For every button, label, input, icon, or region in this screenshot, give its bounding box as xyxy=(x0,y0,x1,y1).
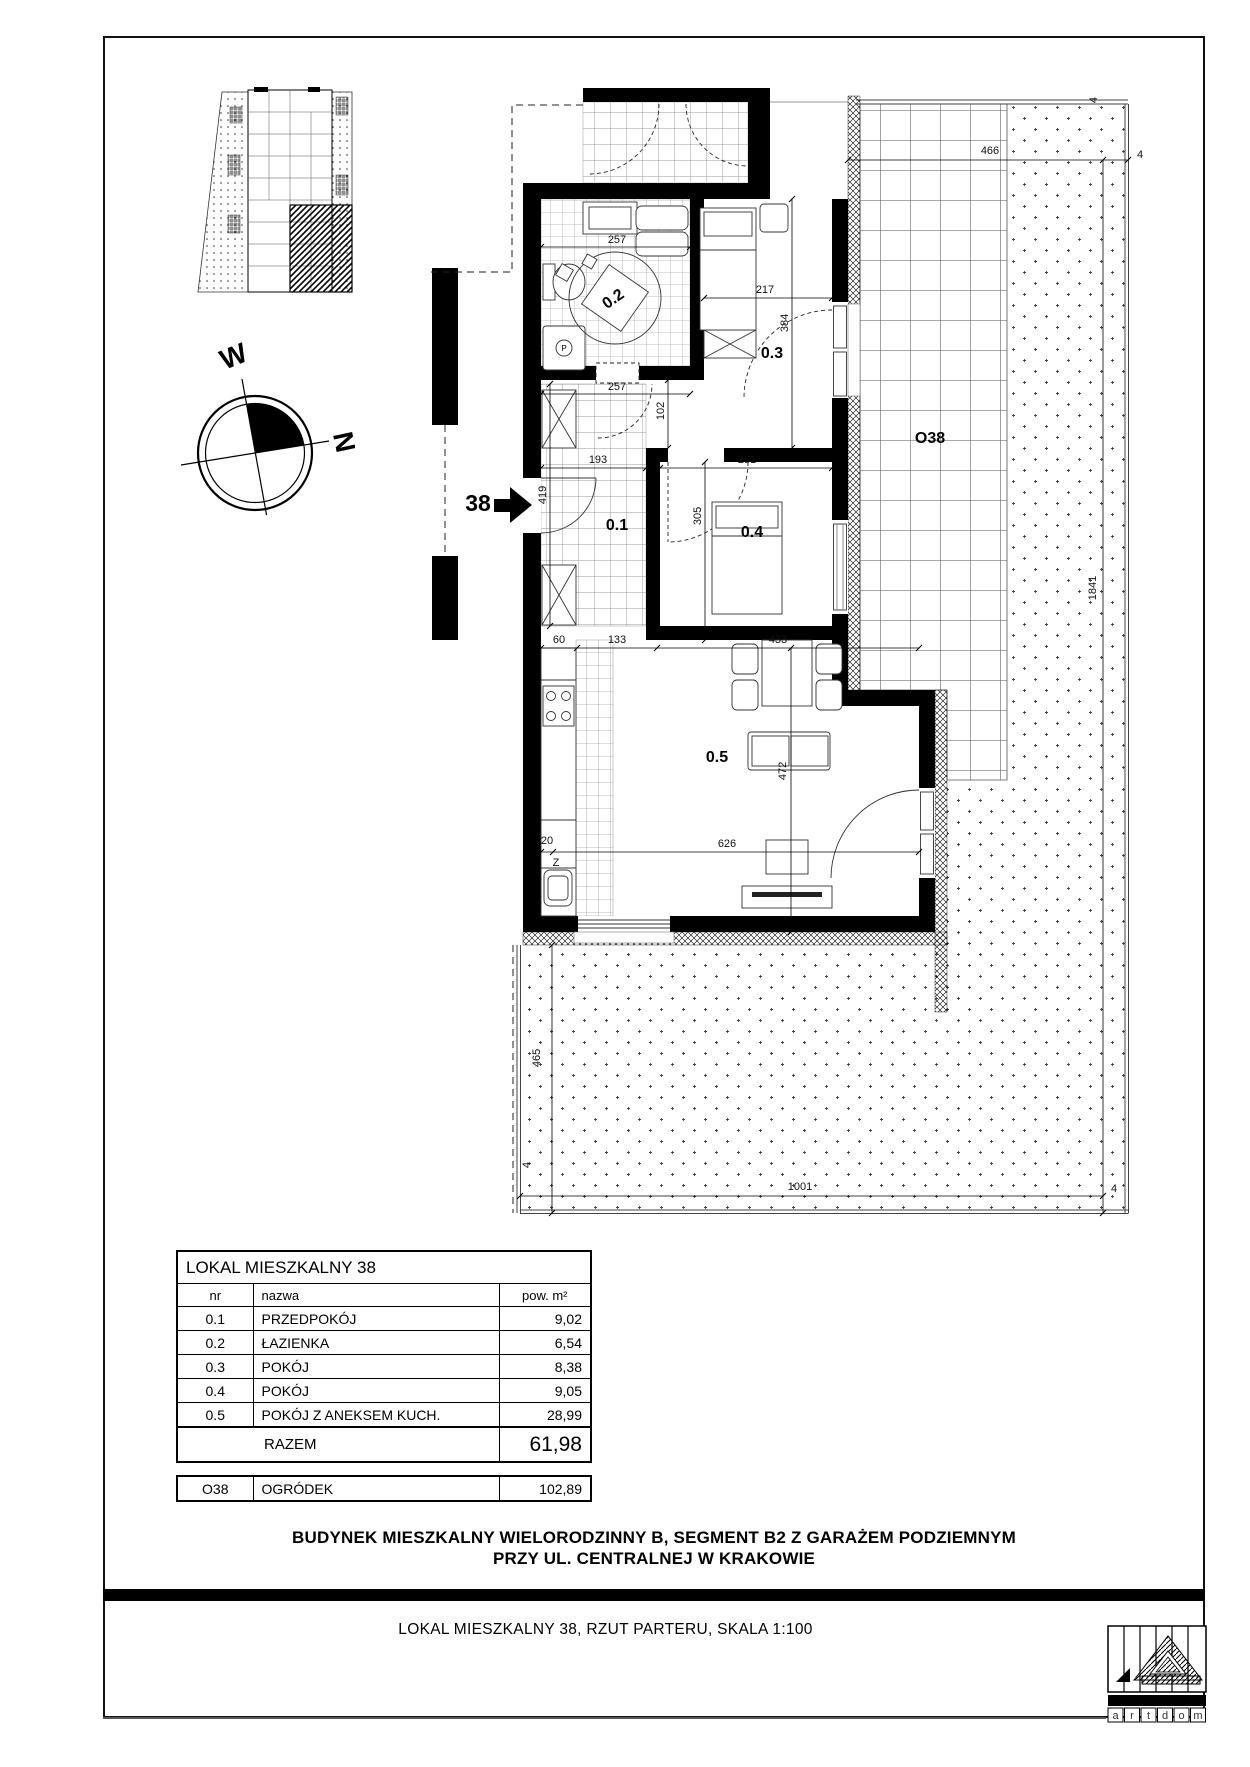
table-row: 0.3 POKÓJ 8,38 xyxy=(177,1355,591,1379)
dim-257-hall: 257 xyxy=(608,381,626,393)
table-row: 0.1 PRZEDPOKÓJ 9,02 xyxy=(177,1307,591,1331)
key-plan-highlighted-unit xyxy=(290,205,352,292)
artdom-logo: a r t d o m xyxy=(1106,1624,1208,1724)
dim-193: 193 xyxy=(589,454,607,466)
logo-letter: m xyxy=(1193,1710,1202,1722)
room-label-room3: 0.3 xyxy=(761,345,783,362)
compass-west-label: W xyxy=(215,337,252,376)
bed xyxy=(700,208,756,330)
total-row: RAZEM 61,98 xyxy=(177,1427,591,1462)
bath-cabinet xyxy=(636,232,688,256)
entrance-marker: 38 xyxy=(465,487,532,523)
dim-20: 20 xyxy=(541,835,553,847)
area-table-title: LOKAL MIESZKALNY 38 xyxy=(177,1251,591,1284)
living-balcony-opening xyxy=(919,788,935,878)
sink-mark: Z xyxy=(553,857,560,869)
dim-626: 626 xyxy=(718,838,736,850)
bed xyxy=(712,502,782,614)
logo-black-bar xyxy=(1108,1695,1206,1706)
compass-north-label: N xyxy=(327,429,355,455)
room-name: POKÓJ Z ANEKSEM KUCH. xyxy=(253,1403,499,1428)
coffee-table xyxy=(766,840,808,874)
dim-102: 102 xyxy=(655,402,667,420)
dim-60: 60 xyxy=(553,634,565,646)
dim-4: 4 xyxy=(1088,97,1100,103)
chair xyxy=(816,680,842,710)
dining-table xyxy=(762,640,812,706)
tv xyxy=(752,892,822,897)
neighbour-wall-stub xyxy=(432,556,458,640)
dim-419: 419 xyxy=(537,486,549,504)
dim-384: 384 xyxy=(779,314,791,332)
room-name: POKÓJ xyxy=(253,1379,499,1403)
room-nr: 0.1 xyxy=(177,1307,253,1331)
col-header-nr: nr xyxy=(177,1284,253,1307)
chair xyxy=(732,680,758,710)
dim-472: 472 xyxy=(777,762,789,780)
total-value: 61,98 xyxy=(499,1427,591,1462)
room-name: PRZEDPOKÓJ xyxy=(253,1307,499,1331)
room-area: 9,02 xyxy=(499,1307,591,1331)
logo-letter: r xyxy=(1130,1710,1134,1722)
dim-4: 4 xyxy=(1111,1183,1117,1195)
kitchen-tiles xyxy=(576,640,613,916)
project-title: BUDYNEK MIESZKALNY WIELORODZINNY B, SEGM… xyxy=(113,1527,1195,1569)
room-area: 9,05 xyxy=(499,1379,591,1403)
garden-area: 102,89 xyxy=(499,1476,591,1501)
room-nr: 0.2 xyxy=(177,1331,253,1355)
logo-letters: a r t d o m xyxy=(1108,1708,1206,1722)
project-title-line1: BUDYNEK MIESZKALNY WIELORODZINNY B, SEGM… xyxy=(113,1527,1195,1548)
bathroom-door xyxy=(596,363,639,383)
table-row: O38 OGRÓDEK 102,89 xyxy=(177,1476,591,1501)
garden-name: OGRÓDEK xyxy=(253,1476,499,1501)
chair xyxy=(732,644,758,674)
room-area: 28,99 xyxy=(499,1403,591,1428)
dim-1001: 1001 xyxy=(788,1181,812,1193)
room-label-hall: 0.1 xyxy=(606,517,628,534)
table-row: 0.2 ŁAZIENKA 6,54 xyxy=(177,1331,591,1355)
key-plan xyxy=(170,55,400,305)
entrance-number: 38 xyxy=(465,490,491,516)
corridor-tiles xyxy=(583,102,748,183)
room-label-room4: 0.4 xyxy=(741,524,763,541)
total-label: RAZEM xyxy=(177,1427,499,1462)
separator-bar xyxy=(103,1589,1205,1601)
logo-letter: t xyxy=(1147,1710,1150,1722)
room3-balcony-opening xyxy=(832,302,848,398)
col-header-area: pow. m² xyxy=(499,1284,591,1307)
room-label-living: 0.5 xyxy=(706,749,728,766)
logo-letter: d xyxy=(1162,1710,1168,1722)
living-door-swing xyxy=(831,790,919,878)
garden-nr: O38 xyxy=(177,1476,253,1501)
dim-433: 433 xyxy=(769,634,787,646)
dim-257-bath: 257 xyxy=(608,234,626,246)
room-area: 8,38 xyxy=(499,1355,591,1379)
room-name: POKÓJ xyxy=(253,1355,499,1379)
project-title-line2: PRZY UL. CENTRALNEJ W KRAKOWIE xyxy=(113,1548,1195,1569)
room-nr: 0.4 xyxy=(177,1379,253,1403)
dim-1841: 1841 xyxy=(1087,576,1099,600)
dim-217: 217 xyxy=(756,284,774,296)
compass: W N xyxy=(175,315,355,515)
garden-label: O38 xyxy=(915,430,945,447)
dim-4: 4 xyxy=(521,1162,533,1168)
dim-281: 281 xyxy=(738,454,756,466)
neighbour-wall-stub xyxy=(432,268,458,425)
garden-table: O38 OGRÓDEK 102,89 xyxy=(176,1475,592,1502)
drawing-title: LOKAL MIESZKALNY 38, RZUT PARTERU, SKALA… xyxy=(103,1621,1108,1639)
logo-letter: o xyxy=(1178,1710,1184,1722)
room-nr: 0.5 xyxy=(177,1403,253,1428)
col-header-name: nazwa xyxy=(253,1284,499,1307)
drawing-sheet: W N xyxy=(0,0,1250,1767)
room-name: ŁAZIENKA xyxy=(253,1331,499,1355)
area-table: LOKAL MIESZKALNY 38 nr nazwa pow. m² 0.1… xyxy=(176,1250,592,1463)
room4-window-opening xyxy=(832,520,848,614)
dim-465: 465 xyxy=(531,1049,543,1067)
bath-cabinet xyxy=(636,206,688,230)
logo-letter: a xyxy=(1112,1710,1119,1722)
table-row: 0.5 POKÓJ Z ANEKSEM KUCH. 28,99 xyxy=(177,1403,591,1428)
table-row: 0.4 POKÓJ 9,05 xyxy=(177,1379,591,1403)
dim-4: 4 xyxy=(1137,149,1143,161)
washer-mark: P xyxy=(561,344,566,353)
floor-plan: P xyxy=(370,80,1150,1230)
dim-133: 133 xyxy=(608,634,626,646)
room-area: 6,54 xyxy=(499,1331,591,1355)
bottom-frame-line xyxy=(103,1717,1106,1719)
nightstand xyxy=(760,204,788,232)
compass-filled-quadrant xyxy=(246,404,303,453)
dim-466: 466 xyxy=(981,145,999,157)
dim-305: 305 xyxy=(692,507,704,525)
chair xyxy=(816,644,842,674)
room-nr: 0.3 xyxy=(177,1355,253,1379)
